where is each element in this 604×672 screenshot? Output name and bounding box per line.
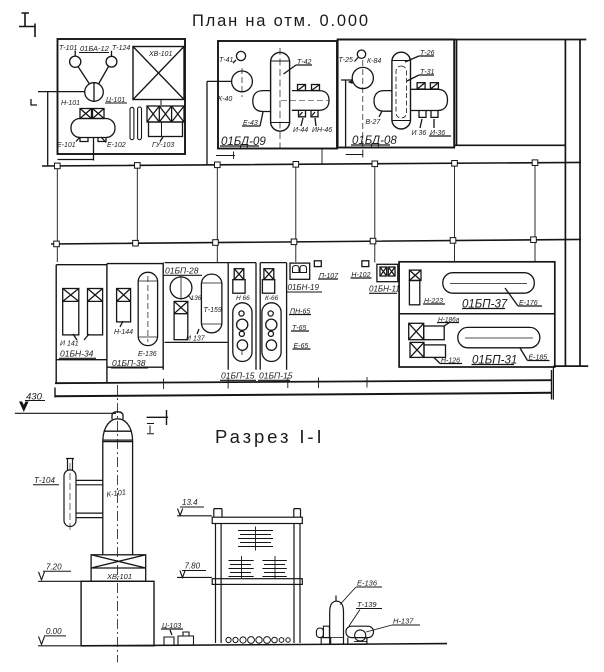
svg-text:01БН-34: 01БН-34 [60, 349, 94, 359]
svg-text:И-44: И-44 [293, 127, 308, 134]
svg-text:01БП-28: 01БП-28 [165, 266, 199, 276]
svg-text:Т-124: Т-124 [112, 45, 130, 52]
svg-text:Н-137: Н-137 [393, 617, 414, 626]
svg-text:01БП-15: 01БП-15 [221, 371, 255, 381]
svg-text:7.20: 7.20 [46, 563, 62, 572]
svg-text:К-101: К-101 [106, 487, 127, 499]
svg-text:Е-136: Е-136 [357, 579, 378, 588]
svg-text:Е-102: Е-102 [107, 142, 126, 149]
svg-text:Н-101: Н-101 [61, 100, 80, 107]
svg-text:Т-104: Т-104 [34, 476, 55, 485]
svg-text:01БП-38: 01БП-38 [112, 358, 146, 368]
svg-text:Т-41: Т-41 [219, 57, 234, 64]
svg-text:Т-139: Т-139 [357, 600, 377, 609]
svg-text:01БН-11: 01БН-11 [369, 285, 400, 294]
svg-text:К-84: К-84 [367, 58, 381, 65]
svg-text:ХВ-101: ХВ-101 [148, 51, 172, 58]
svg-text:Н-144: Н-144 [114, 329, 133, 336]
svg-text:Т-159: Т-159 [204, 307, 222, 314]
svg-text:К-40: К-40 [218, 96, 232, 103]
svg-text:136: 136 [191, 295, 202, 302]
svg-text:ИН-46: ИН-46 [312, 127, 332, 134]
svg-text:01БА-12: 01БА-12 [80, 44, 110, 53]
svg-text:И 141: И 141 [60, 341, 79, 348]
svg-text:К-66: К-66 [265, 295, 279, 302]
svg-text:В-27: В-27 [366, 119, 382, 126]
svg-text:13.4: 13.4 [182, 498, 198, 507]
svg-text:ГУ-103: ГУ-103 [152, 142, 174, 149]
svg-text:Т-25: Т-25 [339, 57, 354, 64]
svg-text:Н 66: Н 66 [236, 295, 250, 302]
svg-text:План на отм. 0.000: План на отм. 0.000 [192, 12, 370, 30]
svg-text:И 137: И 137 [186, 336, 206, 343]
svg-text:0.00: 0.00 [46, 627, 62, 636]
svg-text:01БН-19: 01БН-19 [288, 283, 320, 292]
svg-text:И 36: И 36 [412, 130, 427, 137]
svg-text:ХВ-101: ХВ-101 [106, 572, 132, 581]
svg-text:Е-136: Е-136 [138, 351, 157, 358]
svg-text:Е-101: Е-101 [57, 142, 76, 149]
svg-text:7.80: 7.80 [185, 562, 201, 571]
svg-text:Разрез I-I: Разрез I-I [215, 426, 325, 447]
